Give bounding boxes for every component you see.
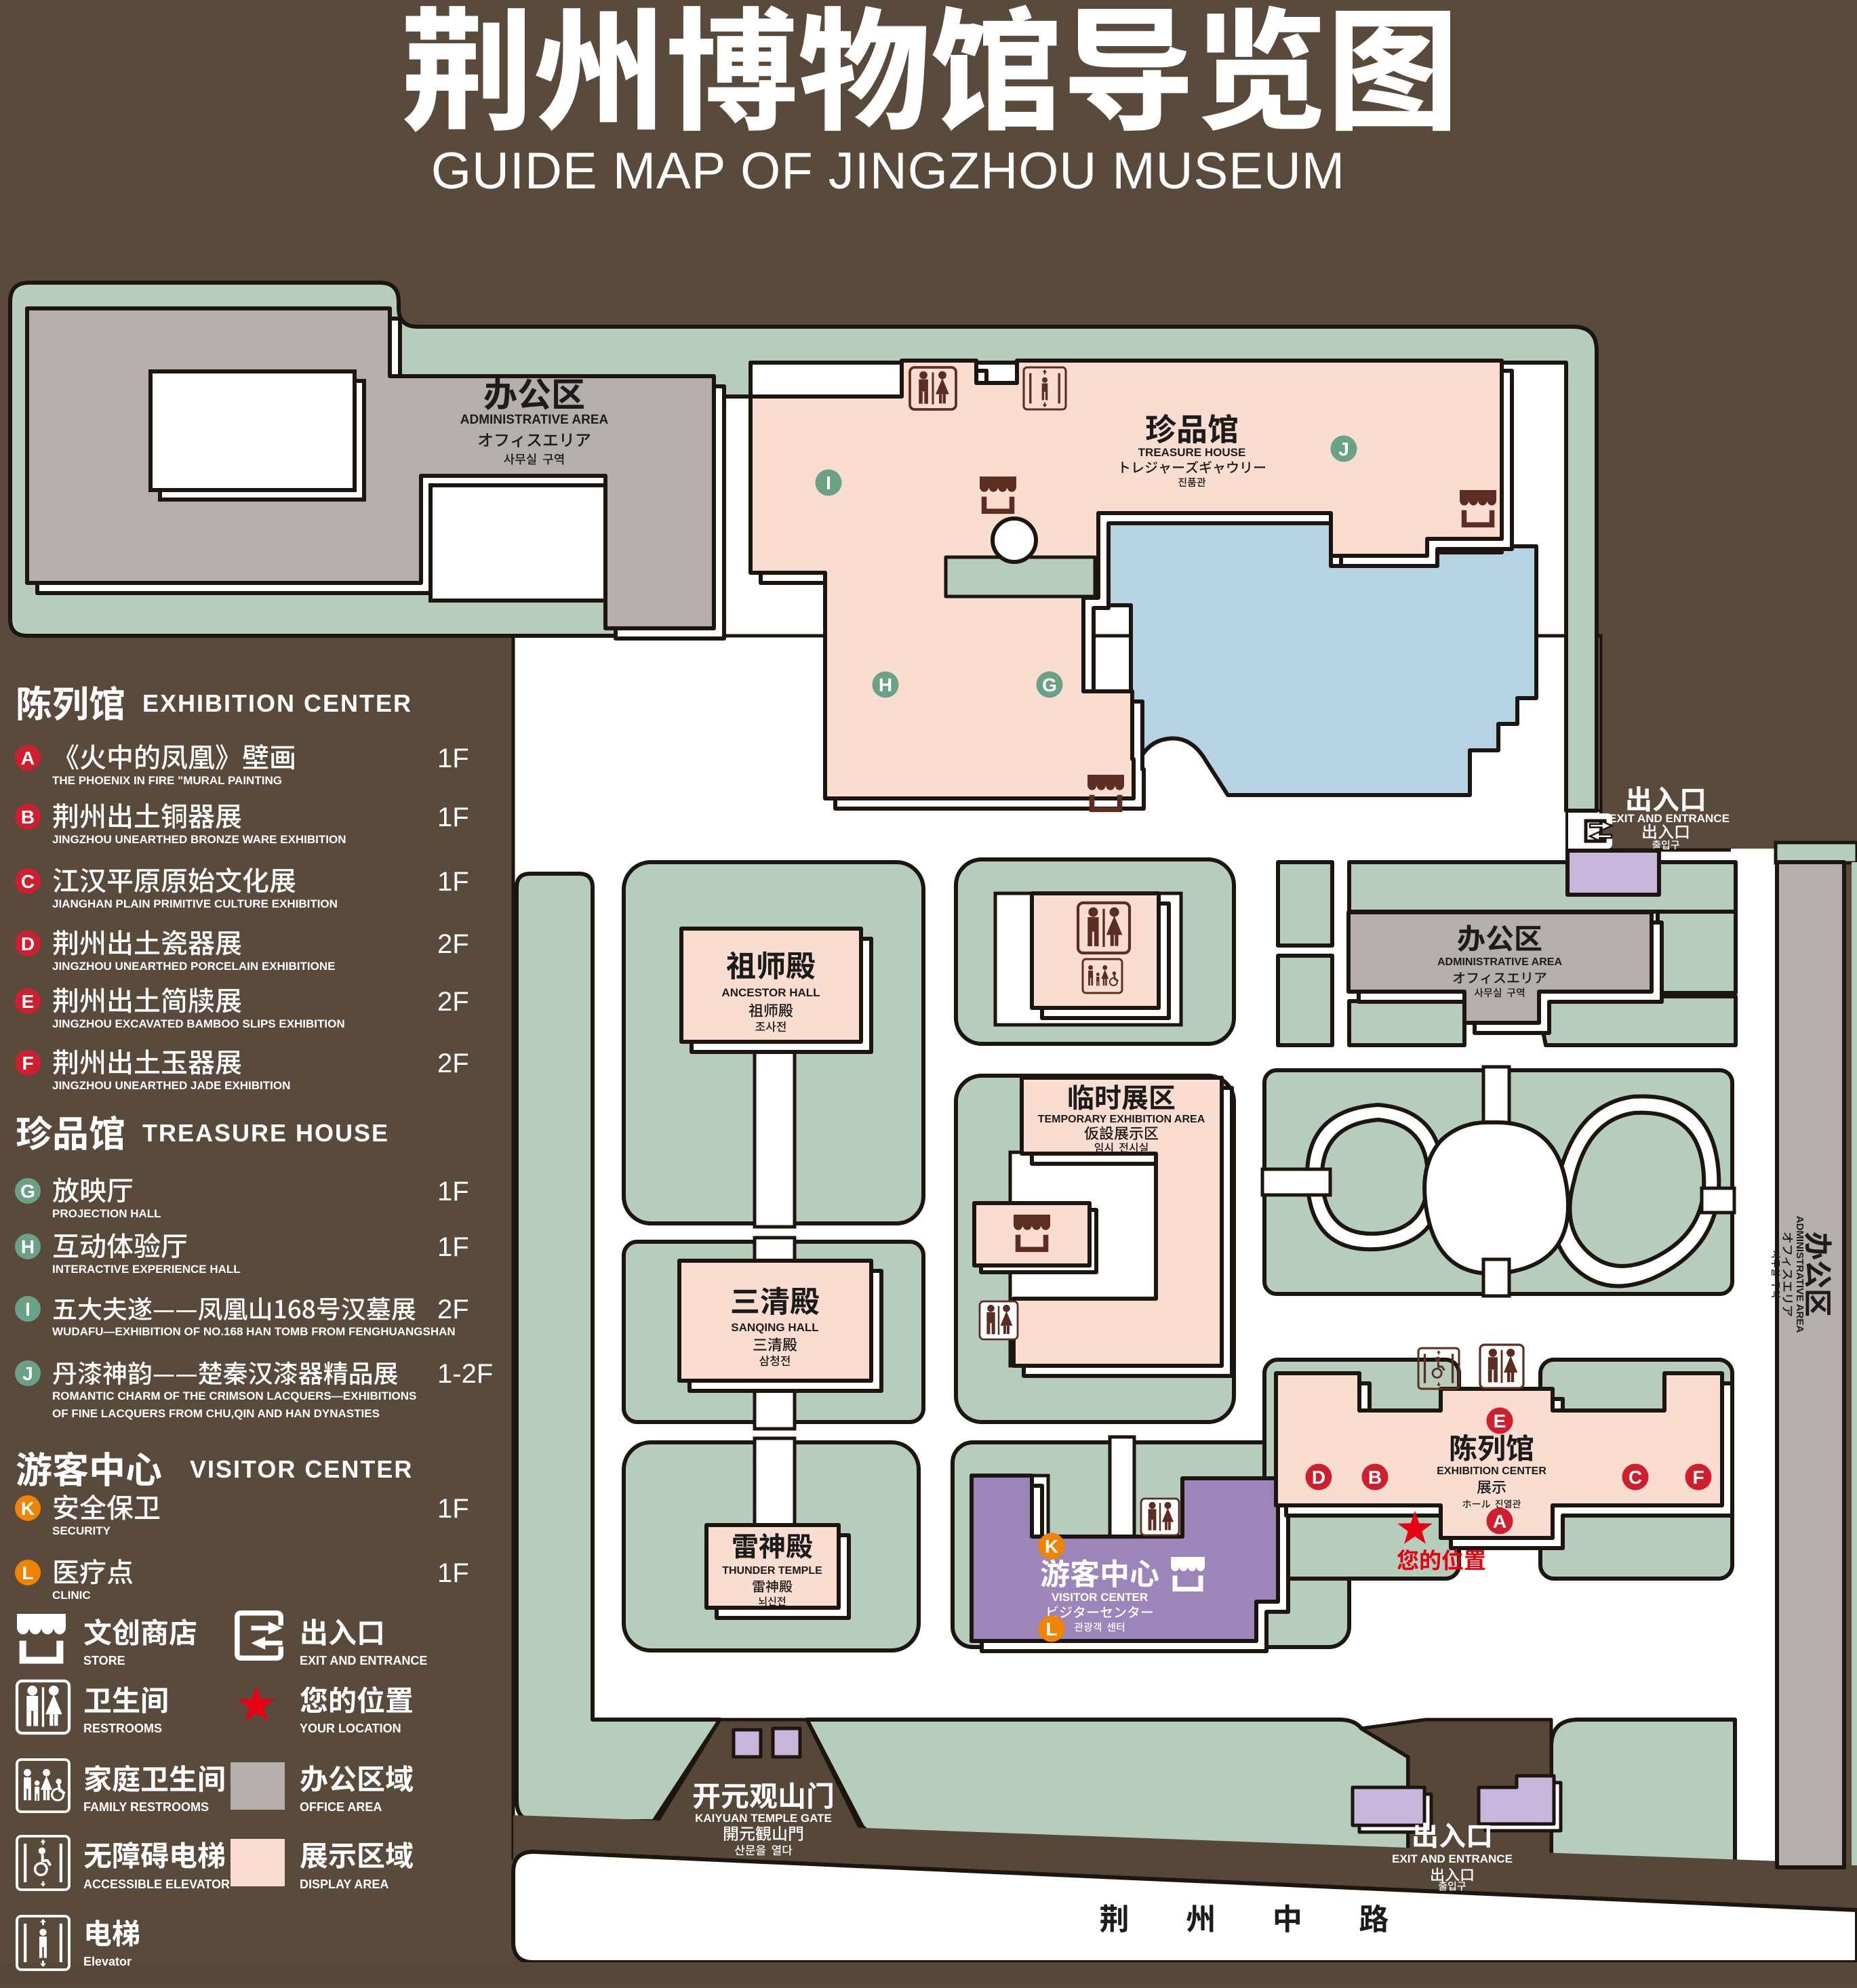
svg-text:ROMANTIC CHARM OF THE CRIMSON: ROMANTIC CHARM OF THE CRIMSON LACQUERS—E… (52, 1389, 416, 1402)
svg-text:B: B (21, 807, 35, 828)
svg-text:CLINIC: CLINIC (52, 1589, 91, 1602)
svg-text:VISITOR CENTER: VISITOR CENTER (1052, 1591, 1148, 1604)
svg-text:SECURITY: SECURITY (52, 1524, 111, 1537)
svg-text:EXIT AND ENTRANCE: EXIT AND ENTRANCE (1609, 812, 1730, 825)
svg-text:1F: 1F (437, 803, 469, 832)
svg-text:K: K (21, 1498, 35, 1519)
svg-text:D: D (21, 933, 35, 954)
svg-text:L: L (1045, 1619, 1057, 1640)
svg-text:L: L (22, 1562, 33, 1583)
svg-text:E: E (22, 991, 35, 1012)
svg-text:2F: 2F (437, 929, 469, 959)
svg-text:H: H (879, 674, 892, 695)
svg-text:ADMINISTRATIVE AREA: ADMINISTRATIVE AREA (1437, 956, 1562, 968)
svg-text:2F: 2F (437, 1049, 469, 1078)
svg-text:A: A (1493, 1511, 1506, 1532)
svg-text:1F: 1F (437, 1494, 469, 1524)
svg-text:D: D (1312, 1467, 1325, 1488)
svg-text:EXIT AND ENTRANCE: EXIT AND ENTRANCE (300, 1654, 427, 1667)
svg-text:THE PHOENIX IN FIRE "MURAL PAI: THE PHOENIX IN FIRE "MURAL PAINTING (52, 774, 282, 787)
svg-text:G: G (20, 1181, 35, 1202)
svg-text:WUDAFU—EXHIBITION OF NO.168 HA: WUDAFU—EXHIBITION OF NO.168 HAN TOMB FRO… (52, 1325, 456, 1338)
svg-text:OF FINE LACQUERS FROM CHU,QIN: OF FINE LACQUERS FROM CHU,QIN AND HAN DY… (52, 1407, 380, 1420)
svg-text:YOUR LOCATION: YOUR LOCATION (300, 1722, 401, 1735)
svg-text:K: K (1045, 1536, 1058, 1557)
svg-text:VISITOR CENTER: VISITOR CENTER (190, 1455, 413, 1483)
svg-text:JINGZHOU UNEARTHED PORCELAIN E: JINGZHOU UNEARTHED PORCELAIN EXHIBITIONE (52, 960, 335, 973)
svg-text:1F: 1F (437, 867, 469, 897)
svg-text:TEMPORARY EXHIBITION AREA: TEMPORARY EXHIBITION AREA (1038, 1114, 1205, 1125)
svg-text:FAMILY RESTROOMS: FAMILY RESTROOMS (83, 1800, 209, 1814)
svg-text:1-2F: 1-2F (437, 1359, 493, 1389)
svg-text:B: B (1368, 1467, 1382, 1488)
svg-text:INTERACTIVE EXPERIENCE HALL: INTERACTIVE EXPERIENCE HALL (52, 1263, 241, 1276)
svg-text:EXHIBITION CENTER: EXHIBITION CENTER (1437, 1465, 1546, 1477)
svg-text:E: E (1494, 1411, 1506, 1432)
svg-text:J: J (1338, 439, 1349, 460)
svg-text:DISPLAY AREA: DISPLAY AREA (300, 1878, 388, 1891)
svg-text:TREASURE HOUSE: TREASURE HOUSE (1138, 446, 1246, 459)
svg-text:G: G (1042, 674, 1057, 695)
svg-text:ADMINISTRATIVE AREA: ADMINISTRATIVE AREA (460, 413, 609, 427)
svg-text:J: J (22, 1363, 33, 1384)
svg-text:KAIYUAN TEMPLE GATE: KAIYUAN TEMPLE GATE (695, 1812, 832, 1825)
svg-text:JINGZHOU UNEARTHED JADE EXHIBI: JINGZHOU UNEARTHED JADE EXHIBITION (52, 1079, 290, 1092)
svg-text:I: I (826, 472, 831, 493)
svg-text:1F: 1F (437, 744, 469, 773)
svg-text:RESTROOMS: RESTROOMS (83, 1722, 162, 1735)
svg-text:I: I (25, 1299, 31, 1320)
svg-text:EXHIBITION CENTER: EXHIBITION CENTER (142, 689, 412, 717)
svg-text:ACCESSIBLE ELEVATOR: ACCESSIBLE ELEVATOR (83, 1878, 230, 1891)
svg-text:EXIT AND ENTRANCE: EXIT AND ENTRANCE (1392, 1852, 1513, 1865)
svg-text:F: F (1692, 1467, 1704, 1488)
svg-text:JINGZHOU UNEARTHED BRONZE WARE: JINGZHOU UNEARTHED BRONZE WARE EXHIBITIO… (52, 833, 346, 846)
svg-text:C: C (21, 871, 35, 892)
svg-text:TREASURE HOUSE: TREASURE HOUSE (142, 1119, 389, 1147)
svg-text:STORE: STORE (83, 1654, 125, 1667)
svg-text:GUIDE MAP OF JINGZHOU MUSEUM: GUIDE MAP OF JINGZHOU MUSEUM (431, 142, 1345, 200)
svg-text:Elevator: Elevator (83, 1955, 132, 1968)
svg-text:ADMINISTRATIVE AREA: ADMINISTRATIVE AREA (1794, 1216, 1805, 1333)
svg-text:ANCESTOR HALL: ANCESTOR HALL (721, 986, 820, 999)
svg-text:1F: 1F (437, 1558, 469, 1588)
svg-text:1F: 1F (437, 1232, 469, 1262)
svg-text:JINGZHOU EXCAVATED BAMBOO SLIP: JINGZHOU EXCAVATED BAMBOO SLIPS EXHIBITI… (52, 1017, 345, 1030)
svg-text:PROJECTION HALL: PROJECTION HALL (52, 1207, 161, 1220)
svg-text:H: H (21, 1236, 35, 1257)
svg-text:C: C (1629, 1467, 1642, 1488)
svg-text:2F: 2F (437, 1295, 469, 1324)
svg-text:1F: 1F (437, 1177, 469, 1206)
svg-text:2F: 2F (437, 987, 469, 1017)
svg-text:SANQING HALL: SANQING HALL (731, 1321, 818, 1334)
svg-text:OFFICE AREA: OFFICE AREA (300, 1800, 382, 1814)
svg-text:JIANGHAN PLAIN PRIMITIVE CULTU: JIANGHAN PLAIN PRIMITIVE CULTURE EXHIBIT… (52, 897, 338, 910)
svg-text:A: A (21, 748, 35, 769)
svg-text:F: F (22, 1053, 33, 1074)
svg-text:THUNDER TEMPLE: THUNDER TEMPLE (722, 1565, 822, 1577)
